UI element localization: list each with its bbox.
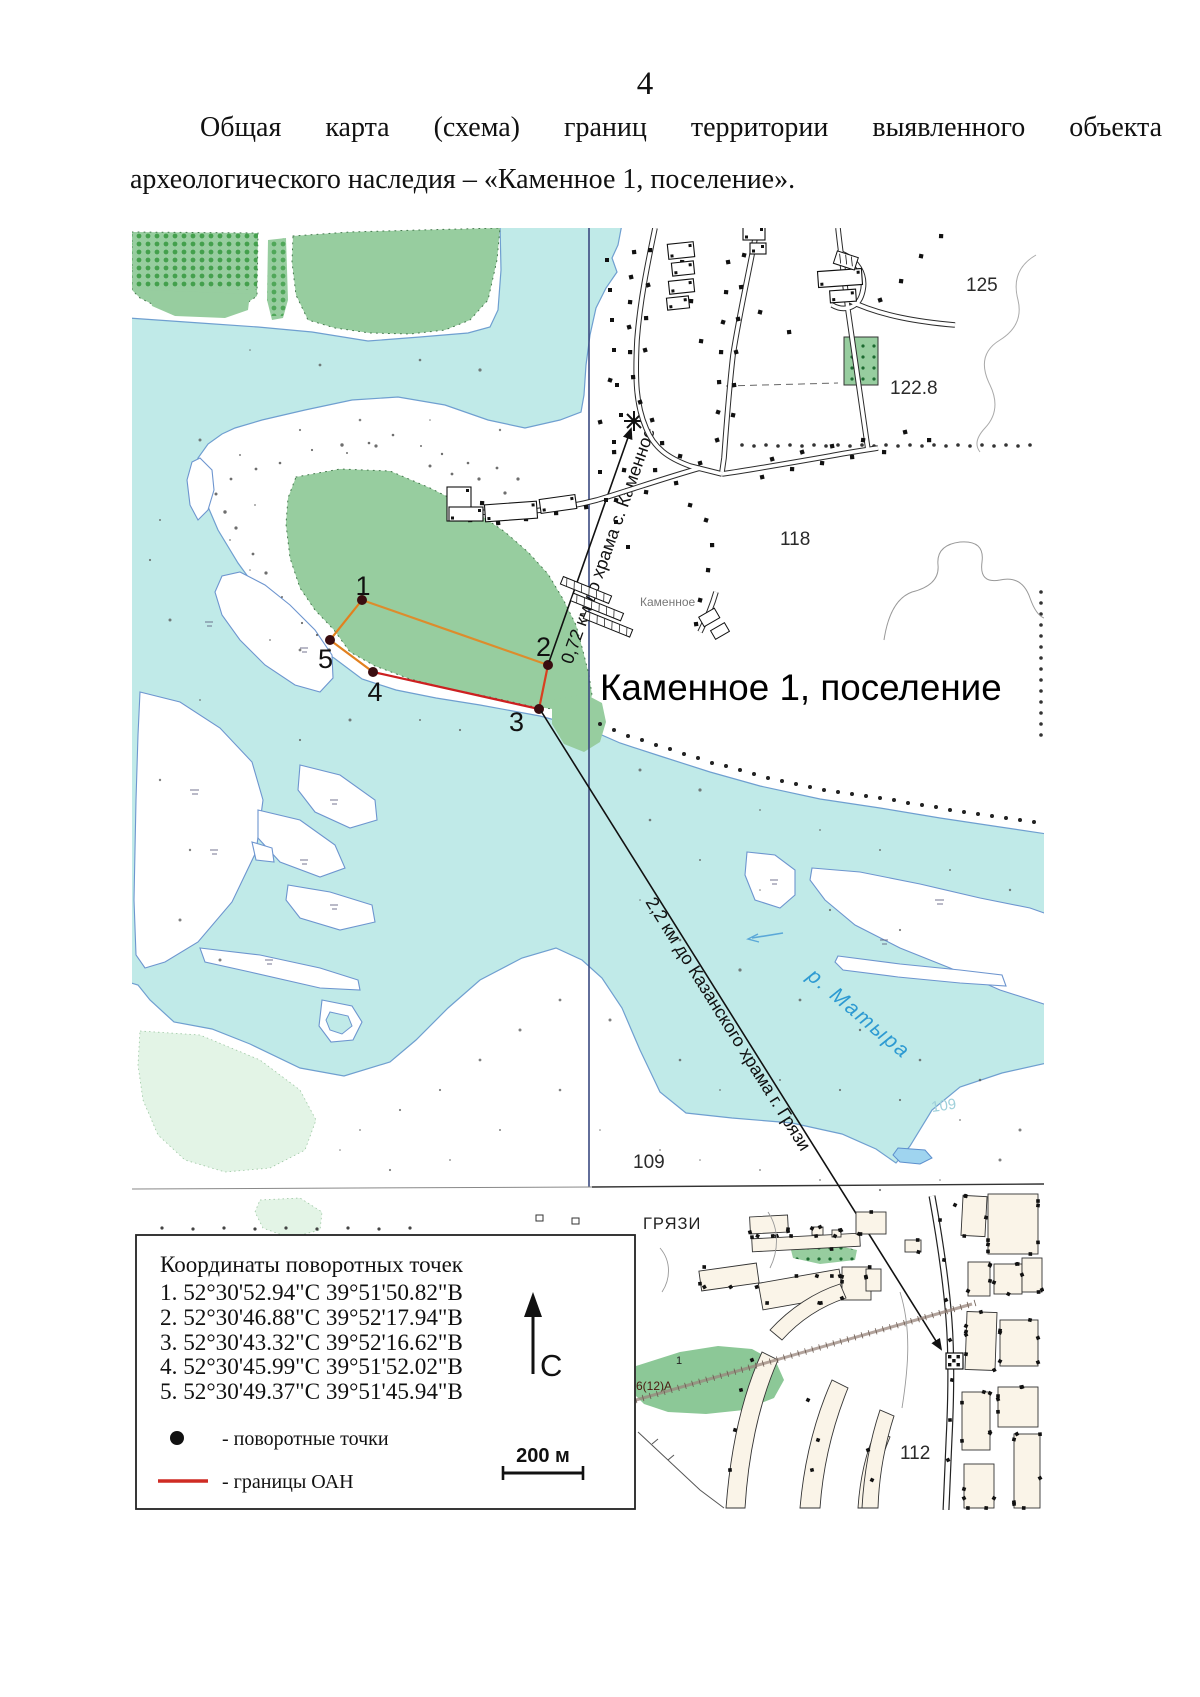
svg-text:4. 52°30'45.99"С 39°51'52.02"В: 4. 52°30'45.99"С 39°51'52.02"В <box>160 1354 463 1380</box>
svg-text:109: 109 <box>633 1152 665 1173</box>
svg-text:109: 109 <box>930 1096 957 1116</box>
svg-text:3: 3 <box>509 707 524 737</box>
svg-text:5. 52°30'49.37"С 39°51'45.94"В: 5. 52°30'49.37"С 39°51'45.94"В <box>160 1379 463 1405</box>
svg-text:3. 52°30'43.32"С 39°52'16.62"В: 3. 52°30'43.32"С 39°52'16.62"В <box>160 1330 463 1356</box>
svg-text:1: 1 <box>676 1355 682 1367</box>
svg-text:1: 1 <box>355 571 370 601</box>
svg-text:- границы ОАН: - границы ОАН <box>222 1471 354 1493</box>
svg-text:118: 118 <box>780 529 810 550</box>
svg-text:С: С <box>540 1348 562 1383</box>
svg-text:Координаты поворотных точек: Координаты поворотных точек <box>160 1252 464 1277</box>
svg-text:Каменное: Каменное <box>640 595 696 609</box>
svg-text:2: 2 <box>536 632 551 662</box>
svg-text:125: 125 <box>966 275 998 296</box>
svg-text:2. 52°30'46.88"С 39°52'17.94"В: 2. 52°30'46.88"С 39°52'17.94"В <box>160 1305 463 1331</box>
svg-text:200 м: 200 м <box>516 1445 570 1467</box>
svg-text:ГРЯЗИ: ГРЯЗИ <box>643 1215 701 1233</box>
svg-text:Каменное 1, поселение: Каменное 1, поселение <box>600 667 1002 708</box>
svg-text:112: 112 <box>900 1443 930 1464</box>
svg-text:5: 5 <box>318 644 333 674</box>
svg-text:- поворотные точки: - поворотные точки <box>222 1428 389 1450</box>
svg-text:1. 52°30'52.94"С 39°51'50.82"В: 1. 52°30'52.94"С 39°51'50.82"В <box>160 1280 463 1306</box>
svg-text:4: 4 <box>367 677 382 707</box>
svg-text:122.8: 122.8 <box>890 378 938 399</box>
